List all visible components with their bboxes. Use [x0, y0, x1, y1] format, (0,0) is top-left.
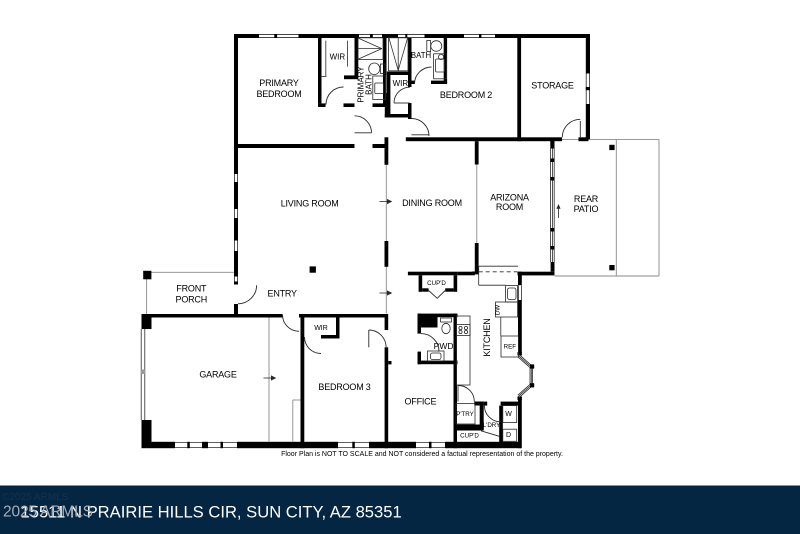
svg-text:BATH: BATH	[365, 74, 374, 95]
svg-text:OFFICE: OFFICE	[404, 397, 436, 407]
svg-text:WIR: WIR	[314, 325, 328, 332]
svg-text:DINING ROOM: DINING ROOM	[402, 198, 462, 208]
svg-text:BEDROOM 2: BEDROOM 2	[440, 90, 492, 100]
svg-text:REF: REF	[504, 344, 517, 351]
svg-text:REAR: REAR	[574, 194, 599, 204]
svg-text:GARAGE: GARAGE	[199, 370, 237, 380]
svg-text:P'TRY: P'TRY	[456, 411, 474, 418]
svg-text:2025 ARMLS: 2025 ARMLS	[3, 504, 93, 521]
svg-text:BEDROOM: BEDROOM	[256, 89, 301, 99]
svg-text:PATIO: PATIO	[574, 204, 599, 214]
svg-text:PORCH: PORCH	[176, 294, 208, 304]
svg-text:D: D	[506, 432, 511, 439]
svg-text:WIR: WIR	[393, 79, 409, 88]
svg-text:LIVING ROOM: LIVING ROOM	[281, 199, 339, 209]
svg-text:CUP'D: CUP'D	[427, 280, 446, 287]
svg-text:FRONT: FRONT	[176, 284, 207, 294]
svg-text:©2025 ARMLS: ©2025 ARMLS	[2, 492, 69, 503]
svg-text:Floor Plan is NOT TO SCALE and: Floor Plan is NOT TO SCALE and NOT consi…	[281, 451, 563, 458]
svg-text:PRIMARY: PRIMARY	[259, 78, 299, 88]
svg-text:W: W	[505, 411, 512, 418]
svg-text:KITCHEN: KITCHEN	[482, 318, 492, 356]
svg-text:ARIZONA: ARIZONA	[490, 192, 529, 202]
svg-text:ROOM: ROOM	[496, 202, 523, 212]
svg-text:WIR: WIR	[330, 52, 346, 61]
svg-text:BATH: BATH	[411, 51, 431, 60]
svg-text:L'DRY: L'DRY	[483, 422, 501, 429]
svg-text:ENTRY: ENTRY	[268, 288, 298, 298]
svg-text:STORAGE: STORAGE	[531, 81, 574, 91]
svg-text:DW: DW	[495, 305, 502, 315]
svg-text:CUP'D: CUP'D	[460, 433, 479, 440]
svg-text:PWD: PWD	[434, 341, 454, 351]
svg-text:BEDROOM 3: BEDROOM 3	[318, 382, 370, 392]
